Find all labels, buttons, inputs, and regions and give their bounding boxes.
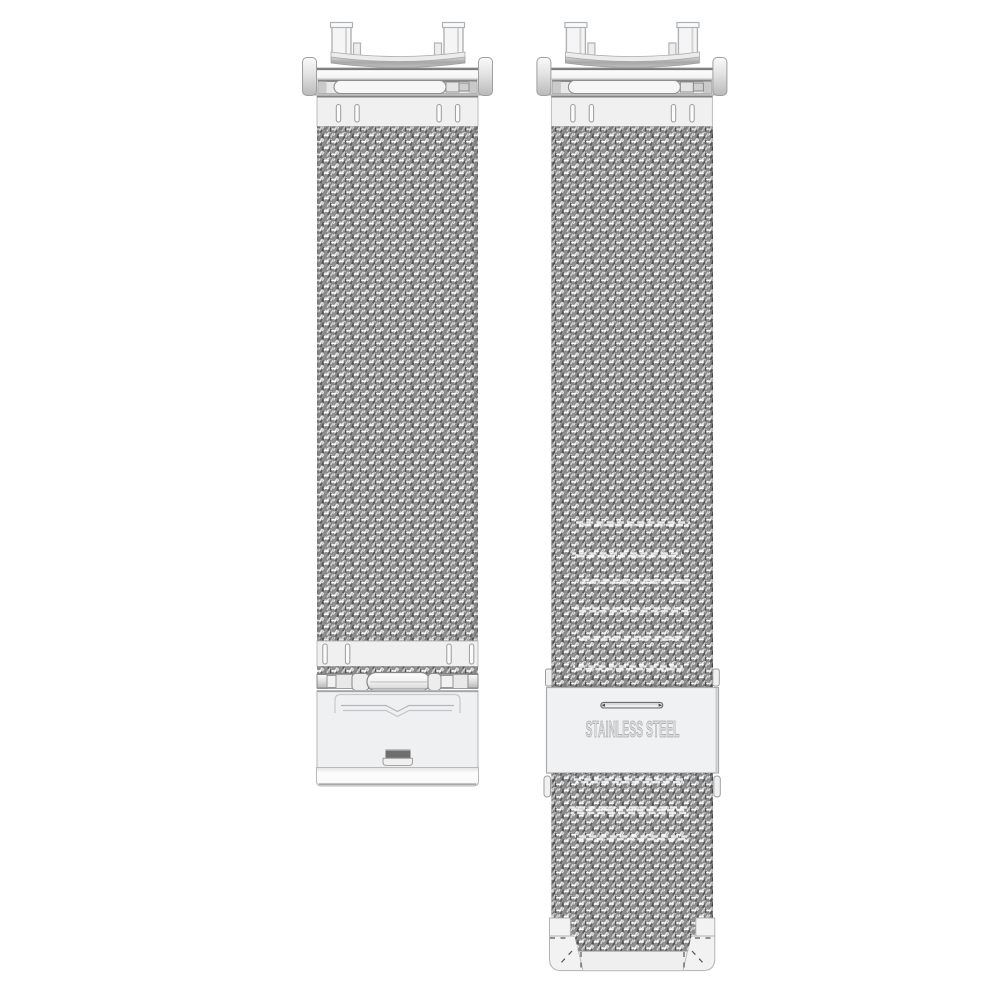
svg-text:STAINLESS STEEL: STAINLESS STEEL <box>586 716 680 742</box>
